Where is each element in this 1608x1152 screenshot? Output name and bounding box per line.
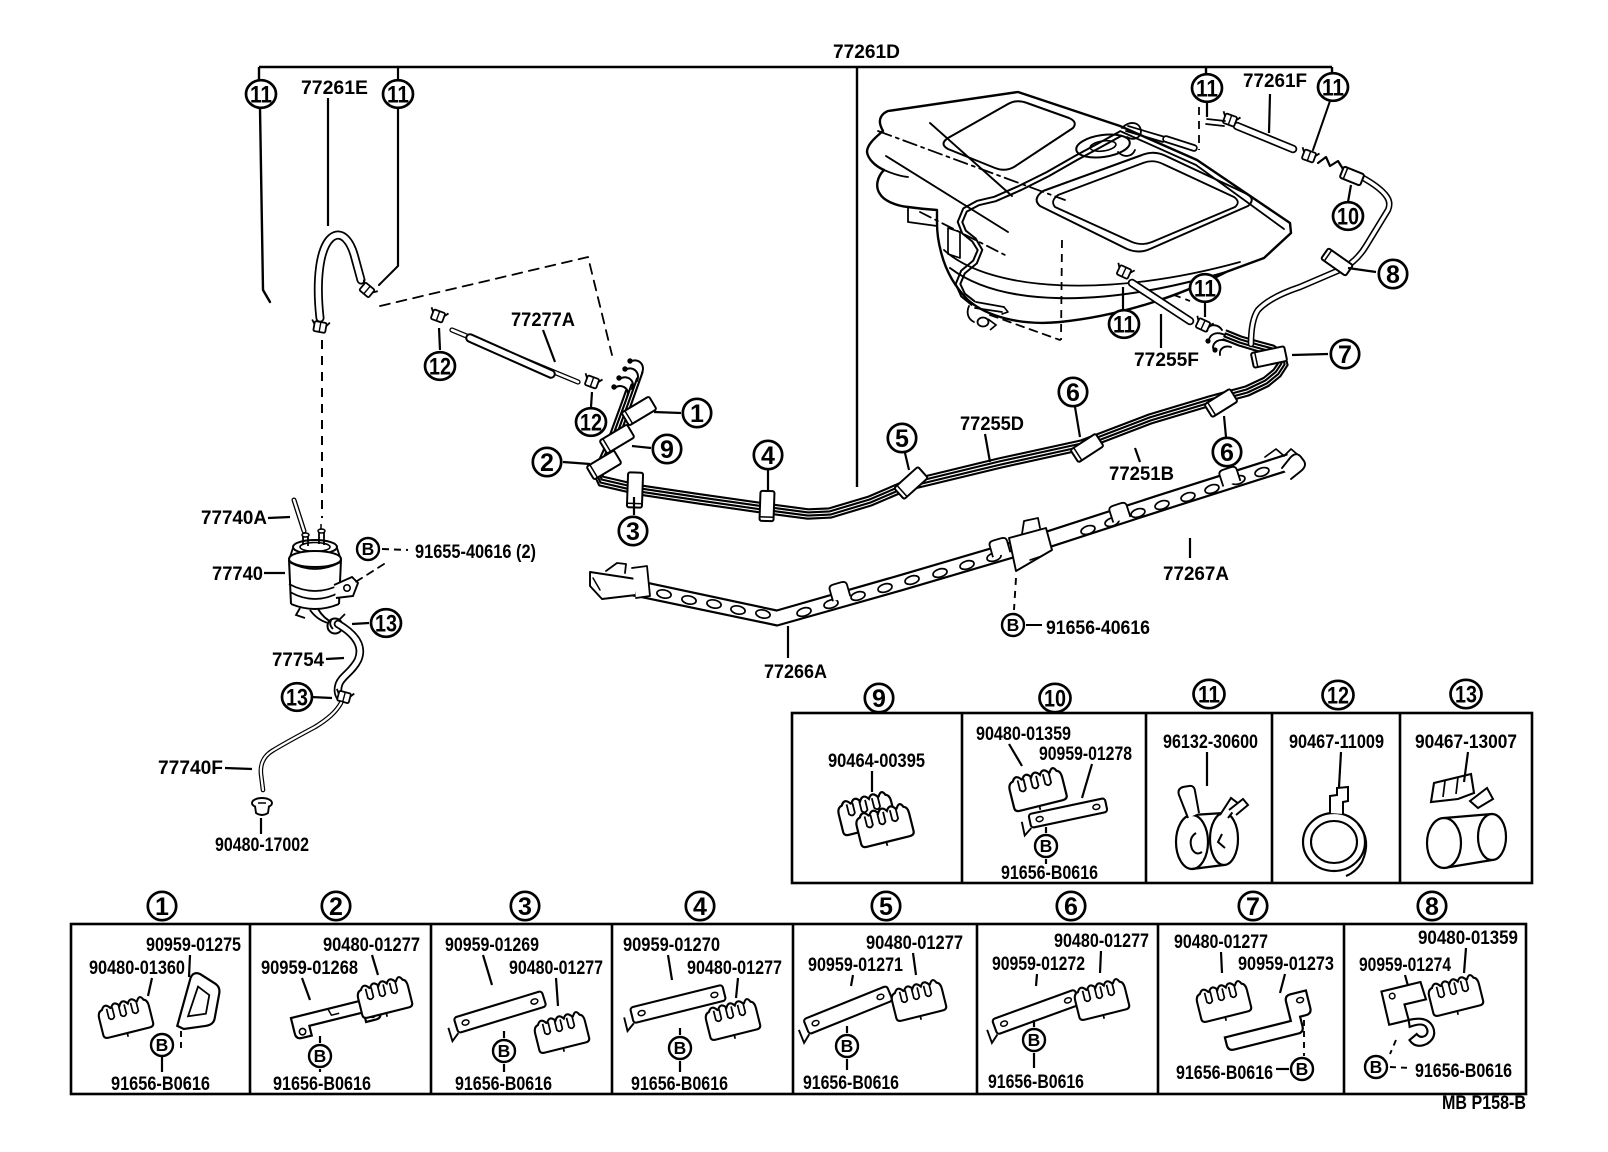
svg-text:90959-01273: 90959-01273 [1238, 953, 1334, 975]
svg-text:5: 5 [879, 893, 893, 921]
svg-text:91655-40616 (2): 91655-40616 (2) [415, 541, 536, 563]
svg-text:96132-30600: 96132-30600 [1163, 731, 1258, 753]
svg-text:12: 12 [429, 354, 451, 381]
svg-text:11: 11 [1198, 682, 1220, 709]
svg-text:1: 1 [690, 400, 704, 428]
svg-text:90959-01278: 90959-01278 [1039, 743, 1132, 765]
svg-text:MB P158-B: MB P158-B [1442, 1092, 1526, 1114]
svg-text:B: B [314, 1046, 327, 1066]
svg-text:77740: 77740 [212, 563, 263, 585]
svg-text:B: B [362, 539, 375, 559]
svg-text:11: 11 [1196, 76, 1218, 103]
svg-text:12: 12 [1327, 683, 1349, 710]
svg-text:3: 3 [518, 893, 532, 921]
svg-text:9: 9 [872, 685, 886, 713]
svg-text:9: 9 [660, 436, 674, 464]
svg-text:90959-01274: 90959-01274 [1359, 954, 1451, 976]
svg-text:B: B [1040, 836, 1053, 856]
svg-text:11: 11 [1194, 276, 1216, 303]
svg-text:B: B [841, 1036, 854, 1056]
svg-text:77251B: 77251B [1109, 463, 1174, 485]
svg-text:B: B [1007, 615, 1020, 635]
svg-text:77740A: 77740A [201, 507, 267, 529]
svg-text:5: 5 [895, 425, 909, 453]
svg-text:13: 13 [375, 611, 397, 638]
svg-text:91656-B0616: 91656-B0616 [1001, 862, 1098, 884]
svg-text:91656-B0616: 91656-B0616 [803, 1072, 899, 1094]
svg-text:90480-01277: 90480-01277 [323, 934, 420, 956]
svg-text:11: 11 [387, 82, 409, 109]
svg-text:B: B [674, 1038, 687, 1058]
svg-text:90480-01277: 90480-01277 [1054, 930, 1149, 952]
svg-text:77255F: 77255F [1134, 349, 1199, 371]
svg-text:90959-01271: 90959-01271 [808, 954, 903, 976]
svg-text:2: 2 [329, 893, 343, 921]
svg-text:7: 7 [1338, 341, 1352, 369]
svg-text:91656-B0616: 91656-B0616 [631, 1073, 728, 1095]
svg-text:91656-B0616: 91656-B0616 [1415, 1060, 1512, 1082]
svg-text:91656-B0616: 91656-B0616 [273, 1073, 371, 1095]
svg-text:8: 8 [1425, 893, 1439, 921]
svg-text:B: B [1296, 1059, 1309, 1079]
svg-text:90959-01275: 90959-01275 [146, 934, 241, 956]
svg-text:90480-17002: 90480-17002 [215, 834, 309, 856]
svg-text:12: 12 [580, 410, 602, 437]
svg-text:4: 4 [761, 442, 775, 470]
svg-text:77261E: 77261E [301, 77, 368, 99]
svg-text:77266A: 77266A [764, 661, 827, 683]
svg-text:90480-01277: 90480-01277 [1174, 931, 1268, 953]
svg-text:77255D: 77255D [960, 413, 1024, 435]
svg-text:90480-01359: 90480-01359 [976, 723, 1071, 745]
svg-text:B: B [156, 1035, 169, 1055]
svg-text:6: 6 [1220, 439, 1234, 467]
svg-text:91656-B0616: 91656-B0616 [1176, 1062, 1273, 1084]
svg-text:10: 10 [1337, 204, 1359, 231]
svg-text:77277A: 77277A [511, 309, 575, 331]
svg-text:90959-01272: 90959-01272 [992, 953, 1085, 975]
svg-text:90480-01277: 90480-01277 [866, 932, 963, 954]
svg-text:90464-00395: 90464-00395 [828, 750, 925, 772]
svg-text:77267A: 77267A [1163, 563, 1229, 585]
svg-text:91656-B0616: 91656-B0616 [455, 1073, 552, 1095]
svg-text:90480-01359: 90480-01359 [1418, 927, 1518, 949]
svg-text:B: B [1370, 1057, 1383, 1077]
svg-text:B: B [1028, 1030, 1041, 1050]
svg-text:B: B [498, 1041, 511, 1061]
svg-text:6: 6 [1066, 379, 1080, 407]
svg-text:90480-01277: 90480-01277 [687, 957, 782, 979]
svg-text:2: 2 [540, 449, 554, 477]
svg-text:91656-B0616: 91656-B0616 [988, 1071, 1084, 1093]
svg-text:77261F: 77261F [1243, 70, 1307, 92]
svg-text:90480-01277: 90480-01277 [509, 957, 603, 979]
svg-text:77740F: 77740F [158, 757, 223, 779]
svg-text:7: 7 [1246, 893, 1260, 921]
svg-text:90959-01270: 90959-01270 [623, 934, 720, 956]
svg-text:90480-01360: 90480-01360 [89, 957, 185, 979]
svg-text:8: 8 [1386, 261, 1400, 289]
svg-text:11: 11 [1113, 312, 1135, 339]
svg-text:11: 11 [250, 82, 272, 109]
svg-text:77754: 77754 [272, 649, 324, 671]
svg-text:13: 13 [1455, 682, 1477, 709]
svg-text:3: 3 [626, 518, 640, 546]
svg-text:91656-40616: 91656-40616 [1046, 617, 1150, 639]
svg-text:4: 4 [693, 893, 707, 921]
svg-text:90467-11009: 90467-11009 [1289, 731, 1384, 753]
svg-text:90959-01269: 90959-01269 [445, 934, 539, 956]
svg-text:77261D: 77261D [833, 41, 900, 63]
svg-text:10: 10 [1044, 686, 1066, 713]
svg-text:6: 6 [1064, 893, 1078, 921]
svg-text:13: 13 [286, 685, 308, 712]
svg-text:91656-B0616: 91656-B0616 [111, 1073, 210, 1095]
svg-text:90959-01268: 90959-01268 [261, 957, 358, 979]
svg-text:1: 1 [155, 893, 169, 921]
svg-text:90467-13007: 90467-13007 [1415, 731, 1517, 753]
svg-text:11: 11 [1322, 75, 1344, 102]
